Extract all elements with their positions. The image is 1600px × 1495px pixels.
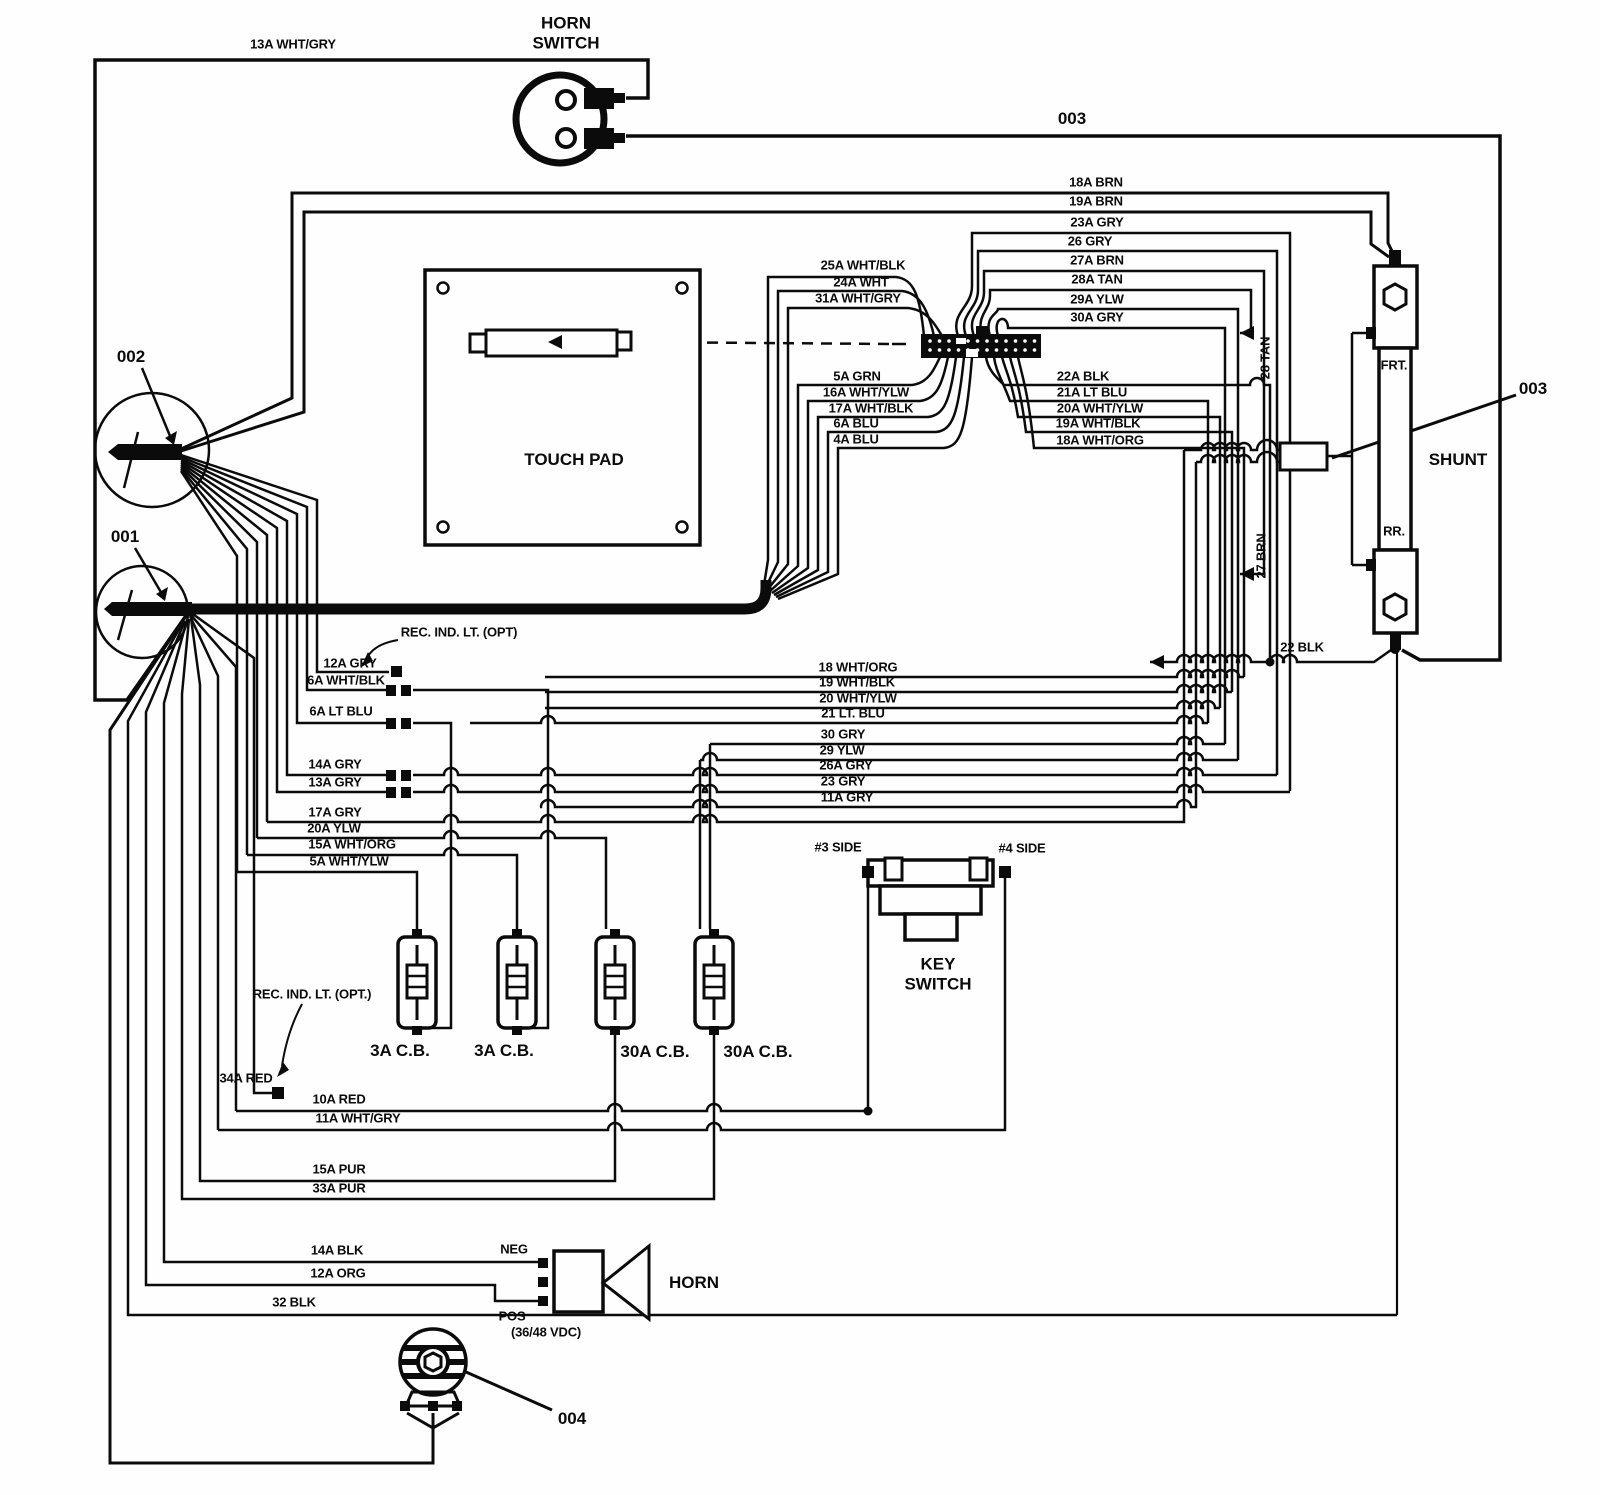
wire-6a-blu: 6A BLU: [833, 417, 878, 432]
wire-5a-wht-ylw: 5A WHT/YLW: [309, 855, 388, 870]
wire-29-ylw: 29 YLW: [820, 744, 865, 759]
wire-20a-wht-ylw: 20A WHT/YLW: [1057, 402, 1143, 417]
wire-6a-wht-blk: 6A WHT/BLK: [307, 674, 385, 689]
wire-4a-blu: 4A BLU: [833, 433, 878, 448]
wire-18a-wht-org: 18A WHT/ORG: [1056, 434, 1144, 449]
cb4-label: 30A C.B.: [723, 1042, 792, 1062]
wire-24a-wht: 24A WHT: [833, 276, 888, 291]
wire-18a-brn: 18A BRN: [1069, 176, 1123, 191]
wire-30-gry: 30 GRY: [821, 728, 866, 743]
wire-12a-gry: 12A GRY: [323, 657, 376, 672]
wire-16a-wht-ylw: 16A WHT/YLW: [823, 386, 909, 401]
key-switch-title: KEY SWITCH: [898, 954, 978, 993]
wire-23a-gry: 23A GRY: [1070, 216, 1123, 231]
horn-neg: NEG: [500, 1243, 528, 1258]
wire-27-brn: 27 BRN: [1255, 533, 1270, 578]
horn-switch-title: HORN SWITCH: [524, 13, 608, 52]
wire-19a-brn: 19A BRN: [1069, 195, 1123, 210]
wire-10a-red: 10A RED: [312, 1093, 365, 1108]
wire-29a-ylw: 29A YLW: [1070, 293, 1124, 308]
horn-title: HORN: [669, 1273, 719, 1293]
wire-20-wht-ylw: 20 WHT/YLW: [819, 692, 896, 707]
wire-12a-org: 12A ORG: [310, 1267, 365, 1282]
wire-6a-lt-blu: 6A LT BLU: [309, 705, 372, 720]
wire-11a-gry: 11A GRY: [821, 791, 874, 806]
shunt-frt: FRT.: [1381, 359, 1408, 374]
label-layer: 13A WHT/GRYHORN SWITCH00318A BRN19A BRN2…: [0, 0, 1600, 1495]
wire-28-tan: 28 TAN: [1259, 337, 1274, 380]
wiring-diagram-page: 13A WHT/GRYHORN SWITCH00318A BRN19A BRN2…: [0, 0, 1600, 1495]
touch-pad-title: TOUCH PAD: [524, 450, 624, 470]
wire-22a-blk: 22A BLK: [1057, 370, 1109, 385]
key-switch-4-side: #4 SIDE: [998, 842, 1045, 857]
shunt-title: SHUNT: [1429, 450, 1488, 470]
key-switch-3-side: #3 SIDE: [814, 841, 861, 856]
wire-19-wht-blk: 19 WHT/BLK: [819, 676, 895, 691]
wire-28a-tan: 28A TAN: [1071, 273, 1122, 288]
wire-13a-gry: 13A GRY: [308, 776, 361, 791]
wire-15a-pur: 15A PUR: [312, 1163, 365, 1178]
wire-20a-ylw: 20A YLW: [307, 822, 361, 837]
wire-14a-gry: 14A GRY: [308, 758, 361, 773]
wire-26-gry: 26 GRY: [1068, 235, 1113, 250]
wire-21a-lt-blu: 21A LT BLU: [1057, 386, 1127, 401]
ref-004: 004: [558, 1409, 586, 1429]
wire-22-blk: 22 BLK: [1280, 641, 1324, 656]
wire-21-lt-blu: 21 LT. BLU: [821, 707, 885, 722]
wire-5a-grn: 5A GRN: [833, 370, 880, 385]
wire-32-blk: 32 BLK: [272, 1296, 316, 1311]
ref-002: 002: [117, 347, 145, 367]
wire-15a-wht-org: 15A WHT/ORG: [308, 838, 396, 853]
horn-pos: POS: [499, 1310, 526, 1325]
wire-17a-wht-blk: 17A WHT/BLK: [829, 402, 914, 417]
note-rec-ind-lt-bottom: REC. IND. LT. (OPT.): [253, 988, 372, 1003]
wire-25a-wht-blk: 25A WHT/BLK: [821, 259, 906, 274]
wire-19a-wht-blk: 19A WHT/BLK: [1056, 417, 1141, 432]
ref-001: 001: [111, 527, 139, 547]
wire-34a-red: 34A RED: [219, 1072, 272, 1087]
wire-17a-gry: 17A GRY: [308, 806, 361, 821]
ref-003-top: 003: [1058, 109, 1086, 129]
ref-003-right: 003: [1519, 379, 1547, 399]
cb1-label: 3A C.B.: [370, 1041, 430, 1061]
wire-26a-gry: 26A GRY: [819, 759, 872, 774]
shunt-rr: RR.: [1383, 525, 1405, 540]
wire-18-wht-org: 18 WHT/ORG: [819, 661, 898, 676]
note-rec-ind-lt-top: REC. IND. LT. (OPT): [401, 626, 518, 641]
wire-31a-wht-gry: 31A WHT/GRY: [815, 292, 901, 307]
wire-11a-wht-gry: 11A WHT/GRY: [316, 1112, 401, 1127]
wire-27a-brn: 27A BRN: [1070, 254, 1124, 269]
cb3-label: 30A C.B.: [620, 1042, 689, 1062]
horn-voltage: (36/48 VDC): [511, 1326, 581, 1341]
wire-33a-pur: 33A PUR: [312, 1182, 365, 1197]
cb2-label: 3A C.B.: [474, 1041, 534, 1061]
wire-13a-wht-gry: 13A WHT/GRY: [250, 38, 336, 53]
wire-30a-gry: 30A GRY: [1070, 311, 1123, 326]
wire-23-gry: 23 GRY: [821, 775, 866, 790]
wire-14a-blk: 14A BLK: [311, 1244, 363, 1259]
